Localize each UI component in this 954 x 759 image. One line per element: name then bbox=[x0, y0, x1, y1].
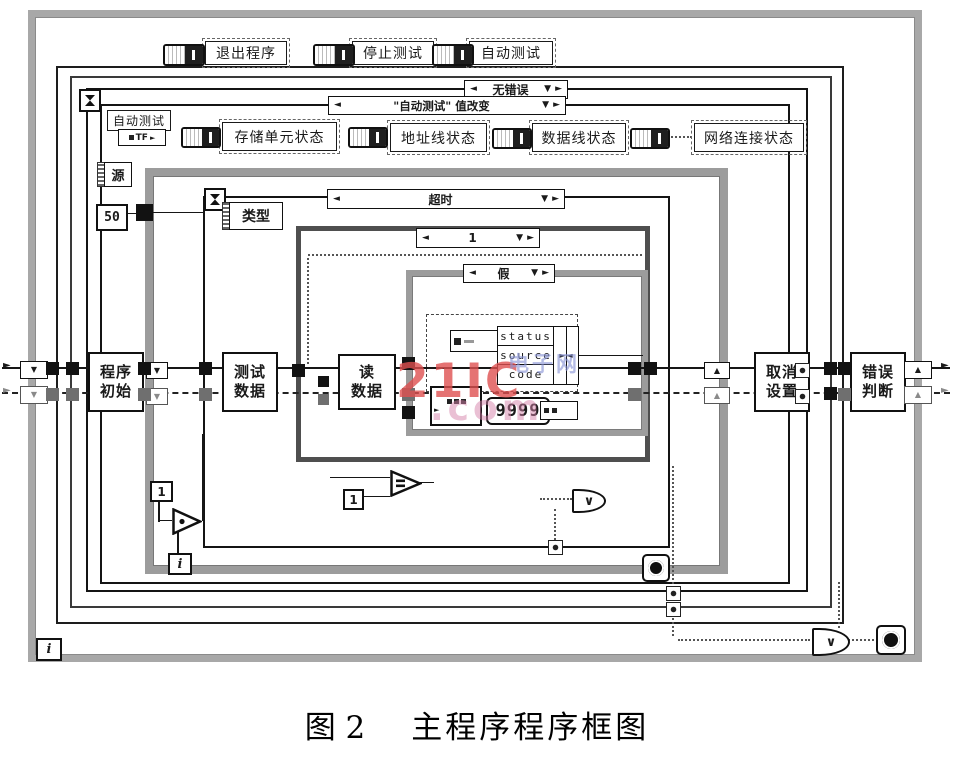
selector-down-arrow-icon: ▼ bbox=[540, 101, 551, 110]
iteration-terminal: i bbox=[36, 638, 62, 661]
dashed-wire-top bbox=[308, 254, 642, 256]
bottom-dotted-a bbox=[678, 639, 810, 641]
label-text: 网络连接状态 bbox=[704, 128, 794, 148]
or1-input-dotted bbox=[540, 498, 572, 500]
label-text: 数据线状态 bbox=[542, 128, 617, 148]
selector-label: "自动测试" 值改变 bbox=[343, 98, 540, 114]
tunnel bbox=[402, 357, 415, 370]
tunnel bbox=[795, 363, 810, 378]
stop-test-label: 停止测试 bbox=[352, 41, 434, 65]
tunnel bbox=[644, 362, 657, 375]
connector-down-icon: ▼ bbox=[20, 386, 48, 404]
tunnel bbox=[795, 389, 810, 404]
stop-button-icon bbox=[876, 625, 906, 655]
equal-input-wire bbox=[330, 477, 390, 478]
tunnel bbox=[199, 362, 212, 375]
tunnel bbox=[66, 388, 79, 401]
test-data-node: 测试 数据 bbox=[222, 352, 278, 412]
auto-test-label-top: 自动测试 bbox=[469, 41, 553, 65]
label-text: 停止测试 bbox=[363, 43, 423, 63]
figure-number: 图 2 bbox=[305, 710, 366, 746]
slide-switch-icon bbox=[348, 127, 388, 148]
event-selector-timeout: ◄ 超时 ▼ ► bbox=[327, 189, 565, 209]
selector-down-arrow-icon: ▼ bbox=[542, 85, 553, 94]
tunnel-junction bbox=[136, 204, 153, 221]
selector-left-arrow-icon: ◄ bbox=[332, 101, 343, 110]
bottom-dotted-b bbox=[848, 639, 874, 641]
label-text: 退出程序 bbox=[216, 43, 276, 63]
slide-switch-icon bbox=[181, 127, 221, 148]
constant-text: 1 bbox=[349, 493, 357, 507]
field-text: code bbox=[509, 368, 544, 381]
tunnel bbox=[666, 586, 681, 601]
tunnel bbox=[292, 364, 305, 377]
boolean-square-icon bbox=[129, 135, 134, 140]
slide-switch-icon bbox=[313, 44, 355, 66]
address-line-status-label: 地址线状态 bbox=[390, 123, 487, 152]
program-init-node: 程序 初始 bbox=[88, 352, 144, 412]
incr-output-v bbox=[202, 434, 204, 521]
tunnel bbox=[46, 388, 59, 401]
small-terminal-icon bbox=[540, 401, 578, 420]
figure-title: 主程序程序框图 bbox=[411, 710, 649, 746]
node-text: 程序 初始 bbox=[100, 363, 132, 401]
down-arrow-icon: ▼ bbox=[31, 366, 37, 374]
or-glyph: ∨ bbox=[584, 494, 595, 509]
up-arrow-icon: ▲ bbox=[915, 366, 921, 374]
tunnel bbox=[199, 388, 212, 401]
connector-up-icon: ▲ bbox=[704, 387, 730, 404]
tunnel bbox=[838, 362, 851, 375]
selector-left-arrow-icon: ◄ bbox=[467, 269, 478, 278]
tunnel bbox=[66, 362, 79, 375]
selector-right-arrow-icon: ► bbox=[525, 234, 536, 243]
node-text: 读 数据 bbox=[351, 363, 383, 401]
selector-down-arrow-icon: ▼ bbox=[514, 234, 525, 243]
case-selector-1: ◄ 1 ▼ ► bbox=[416, 228, 540, 248]
selector-left-arrow-icon: ◄ bbox=[420, 234, 431, 243]
boolean-text: TF bbox=[136, 133, 148, 143]
network-status-label: 网络连接状态 bbox=[694, 123, 804, 152]
slide-switch-icon bbox=[492, 128, 532, 149]
wire-entry-arrow: ► bbox=[3, 361, 11, 371]
iteration-text: i bbox=[47, 642, 52, 657]
wire-junction bbox=[318, 394, 329, 405]
wire-50-b bbox=[153, 212, 205, 213]
boolean-terminal: TF ► bbox=[118, 129, 166, 146]
connector-up-icon: ▲ bbox=[704, 362, 730, 379]
label-text: 类型 bbox=[242, 206, 270, 226]
dashed-wire-vert bbox=[307, 258, 309, 364]
wire-junction bbox=[318, 376, 329, 387]
bundle-output-node: ►◄ bbox=[553, 326, 579, 385]
constant-text: 9999 bbox=[496, 401, 541, 421]
tunnel bbox=[824, 387, 837, 400]
incr-elbow-h bbox=[158, 520, 172, 521]
constant-1: 1 bbox=[343, 489, 364, 510]
slide-switch-icon bbox=[432, 44, 474, 66]
selector-right-arrow-icon: ► bbox=[540, 269, 551, 278]
bundle-arrow-icon: ◄ bbox=[567, 351, 573, 360]
field-text: status bbox=[500, 330, 552, 343]
bundle-arrow-icon: ► bbox=[559, 351, 565, 360]
connector-up-icon: ▲ bbox=[904, 361, 932, 379]
stop-dot bbox=[648, 560, 665, 577]
tunnel bbox=[402, 406, 415, 419]
constant-1: 1 bbox=[150, 481, 173, 502]
selector-left-arrow-icon: ◄ bbox=[331, 195, 342, 204]
auto-test-caption: 自动测试 bbox=[107, 110, 171, 131]
label-text: 源 bbox=[111, 165, 124, 184]
selector-right-arrow-icon: ► bbox=[550, 195, 561, 204]
selector-label: 1 bbox=[431, 231, 514, 245]
label-text: 自动测试 bbox=[481, 43, 541, 63]
icon-dash bbox=[464, 340, 474, 343]
error-judge-node: 错误 判断 bbox=[850, 352, 906, 412]
selector-right-arrow-icon: ► bbox=[553, 85, 564, 94]
connector-up-icon: ▲ bbox=[904, 386, 932, 404]
label-text: 自动测试 bbox=[113, 112, 165, 129]
field-text: source bbox=[500, 349, 552, 362]
subvi-arrow-icon: ► bbox=[434, 406, 439, 414]
stop-button-icon bbox=[642, 554, 670, 582]
wire-exit-arrow: ► bbox=[941, 361, 949, 371]
slide-switch-icon bbox=[163, 44, 205, 66]
tunnel bbox=[628, 362, 641, 375]
icon-bit bbox=[544, 408, 549, 413]
storage-unit-status-label: 存储单元状态 bbox=[222, 122, 337, 151]
case-selector-false: ◄ 假 ▼ ► bbox=[463, 264, 555, 283]
or-glyph: ∨ bbox=[826, 635, 837, 650]
tunnel bbox=[548, 540, 563, 555]
icon-bit bbox=[454, 338, 461, 345]
subvi-icon: ► bbox=[430, 386, 482, 426]
figure-caption: 图 2主程序程序框图 bbox=[0, 702, 954, 747]
tunnel bbox=[666, 602, 681, 617]
selector-right-arrow-icon: ► bbox=[551, 101, 562, 110]
figure-canvas: ► ► ► ► ◄ 无错误 ▼ ► ◄ "自动测试" 值改变 ▼ ► ◄ 超时 … bbox=[0, 0, 954, 759]
bundle-out-wire bbox=[577, 355, 643, 356]
wire-entry-arrow-2: ► bbox=[3, 386, 11, 396]
down-arrow-icon: ▼ bbox=[154, 393, 160, 401]
selector-label: 假 bbox=[478, 265, 529, 282]
tunnel bbox=[824, 362, 837, 375]
boolean-arrow-icon: ► bbox=[150, 134, 155, 142]
exit-program-label: 退出程序 bbox=[205, 41, 287, 65]
wire-exit-arrow-2: ► bbox=[941, 386, 949, 396]
node-text: 错误 判断 bbox=[862, 363, 894, 401]
connector-down-icon: ▼ bbox=[20, 361, 48, 379]
cluster-field-code: code bbox=[497, 364, 555, 385]
label-text: 存储单元状态 bbox=[235, 127, 325, 147]
equal-node-icon bbox=[390, 470, 422, 497]
selector-left-arrow-icon: ◄ bbox=[468, 85, 479, 94]
equal-output-wire bbox=[420, 482, 434, 483]
increment-node-icon bbox=[172, 508, 202, 535]
slide-switch-icon bbox=[630, 128, 670, 149]
cluster-field-source: source bbox=[497, 345, 555, 366]
tunnel bbox=[138, 388, 151, 401]
node-text: 测试 数据 bbox=[234, 363, 266, 401]
iteration-text: i bbox=[178, 557, 183, 572]
down-arrow-icon: ▼ bbox=[31, 391, 37, 399]
constant-text: 1 bbox=[157, 485, 165, 499]
label-text: 地址线状态 bbox=[401, 128, 476, 148]
stop-dot bbox=[882, 631, 900, 649]
tunnel bbox=[838, 388, 851, 401]
error-cluster-icon bbox=[450, 330, 498, 352]
down-arrow-icon: ▼ bbox=[154, 367, 160, 375]
right-dotted-short bbox=[838, 582, 840, 628]
source-field-label: 源 bbox=[104, 162, 132, 187]
tunnel bbox=[628, 388, 641, 401]
hourglass-icon bbox=[79, 89, 101, 112]
up-arrow-icon: ▲ bbox=[714, 392, 720, 400]
tunnel bbox=[46, 362, 59, 375]
cluster-field-status: status bbox=[497, 326, 555, 347]
type-field-label: 类型 bbox=[229, 202, 283, 230]
event-selector-value-change: ◄ "自动测试" 值改变 ▼ ► bbox=[328, 96, 566, 115]
tunnel bbox=[402, 388, 415, 401]
selector-label: 超时 bbox=[342, 191, 539, 208]
tunnel bbox=[138, 362, 151, 375]
icon-bit bbox=[552, 408, 557, 413]
up-arrow-icon: ▲ bbox=[714, 367, 720, 375]
up-arrow-icon: ▲ bbox=[915, 391, 921, 399]
constant-text: 50 bbox=[104, 210, 120, 225]
iteration-terminal: i bbox=[168, 553, 192, 575]
equal-const-wire bbox=[360, 496, 390, 497]
node-text: 取消 设置 bbox=[766, 363, 798, 401]
selector-down-arrow-icon: ▼ bbox=[539, 195, 550, 204]
read-data-node: 读 数据 bbox=[338, 354, 396, 410]
data-line-status-label: 数据线状态 bbox=[532, 123, 626, 152]
or1-down-dotted bbox=[554, 509, 556, 540]
constant-50: 50 bbox=[96, 204, 128, 231]
selector-down-arrow-icon: ▼ bbox=[529, 269, 540, 278]
